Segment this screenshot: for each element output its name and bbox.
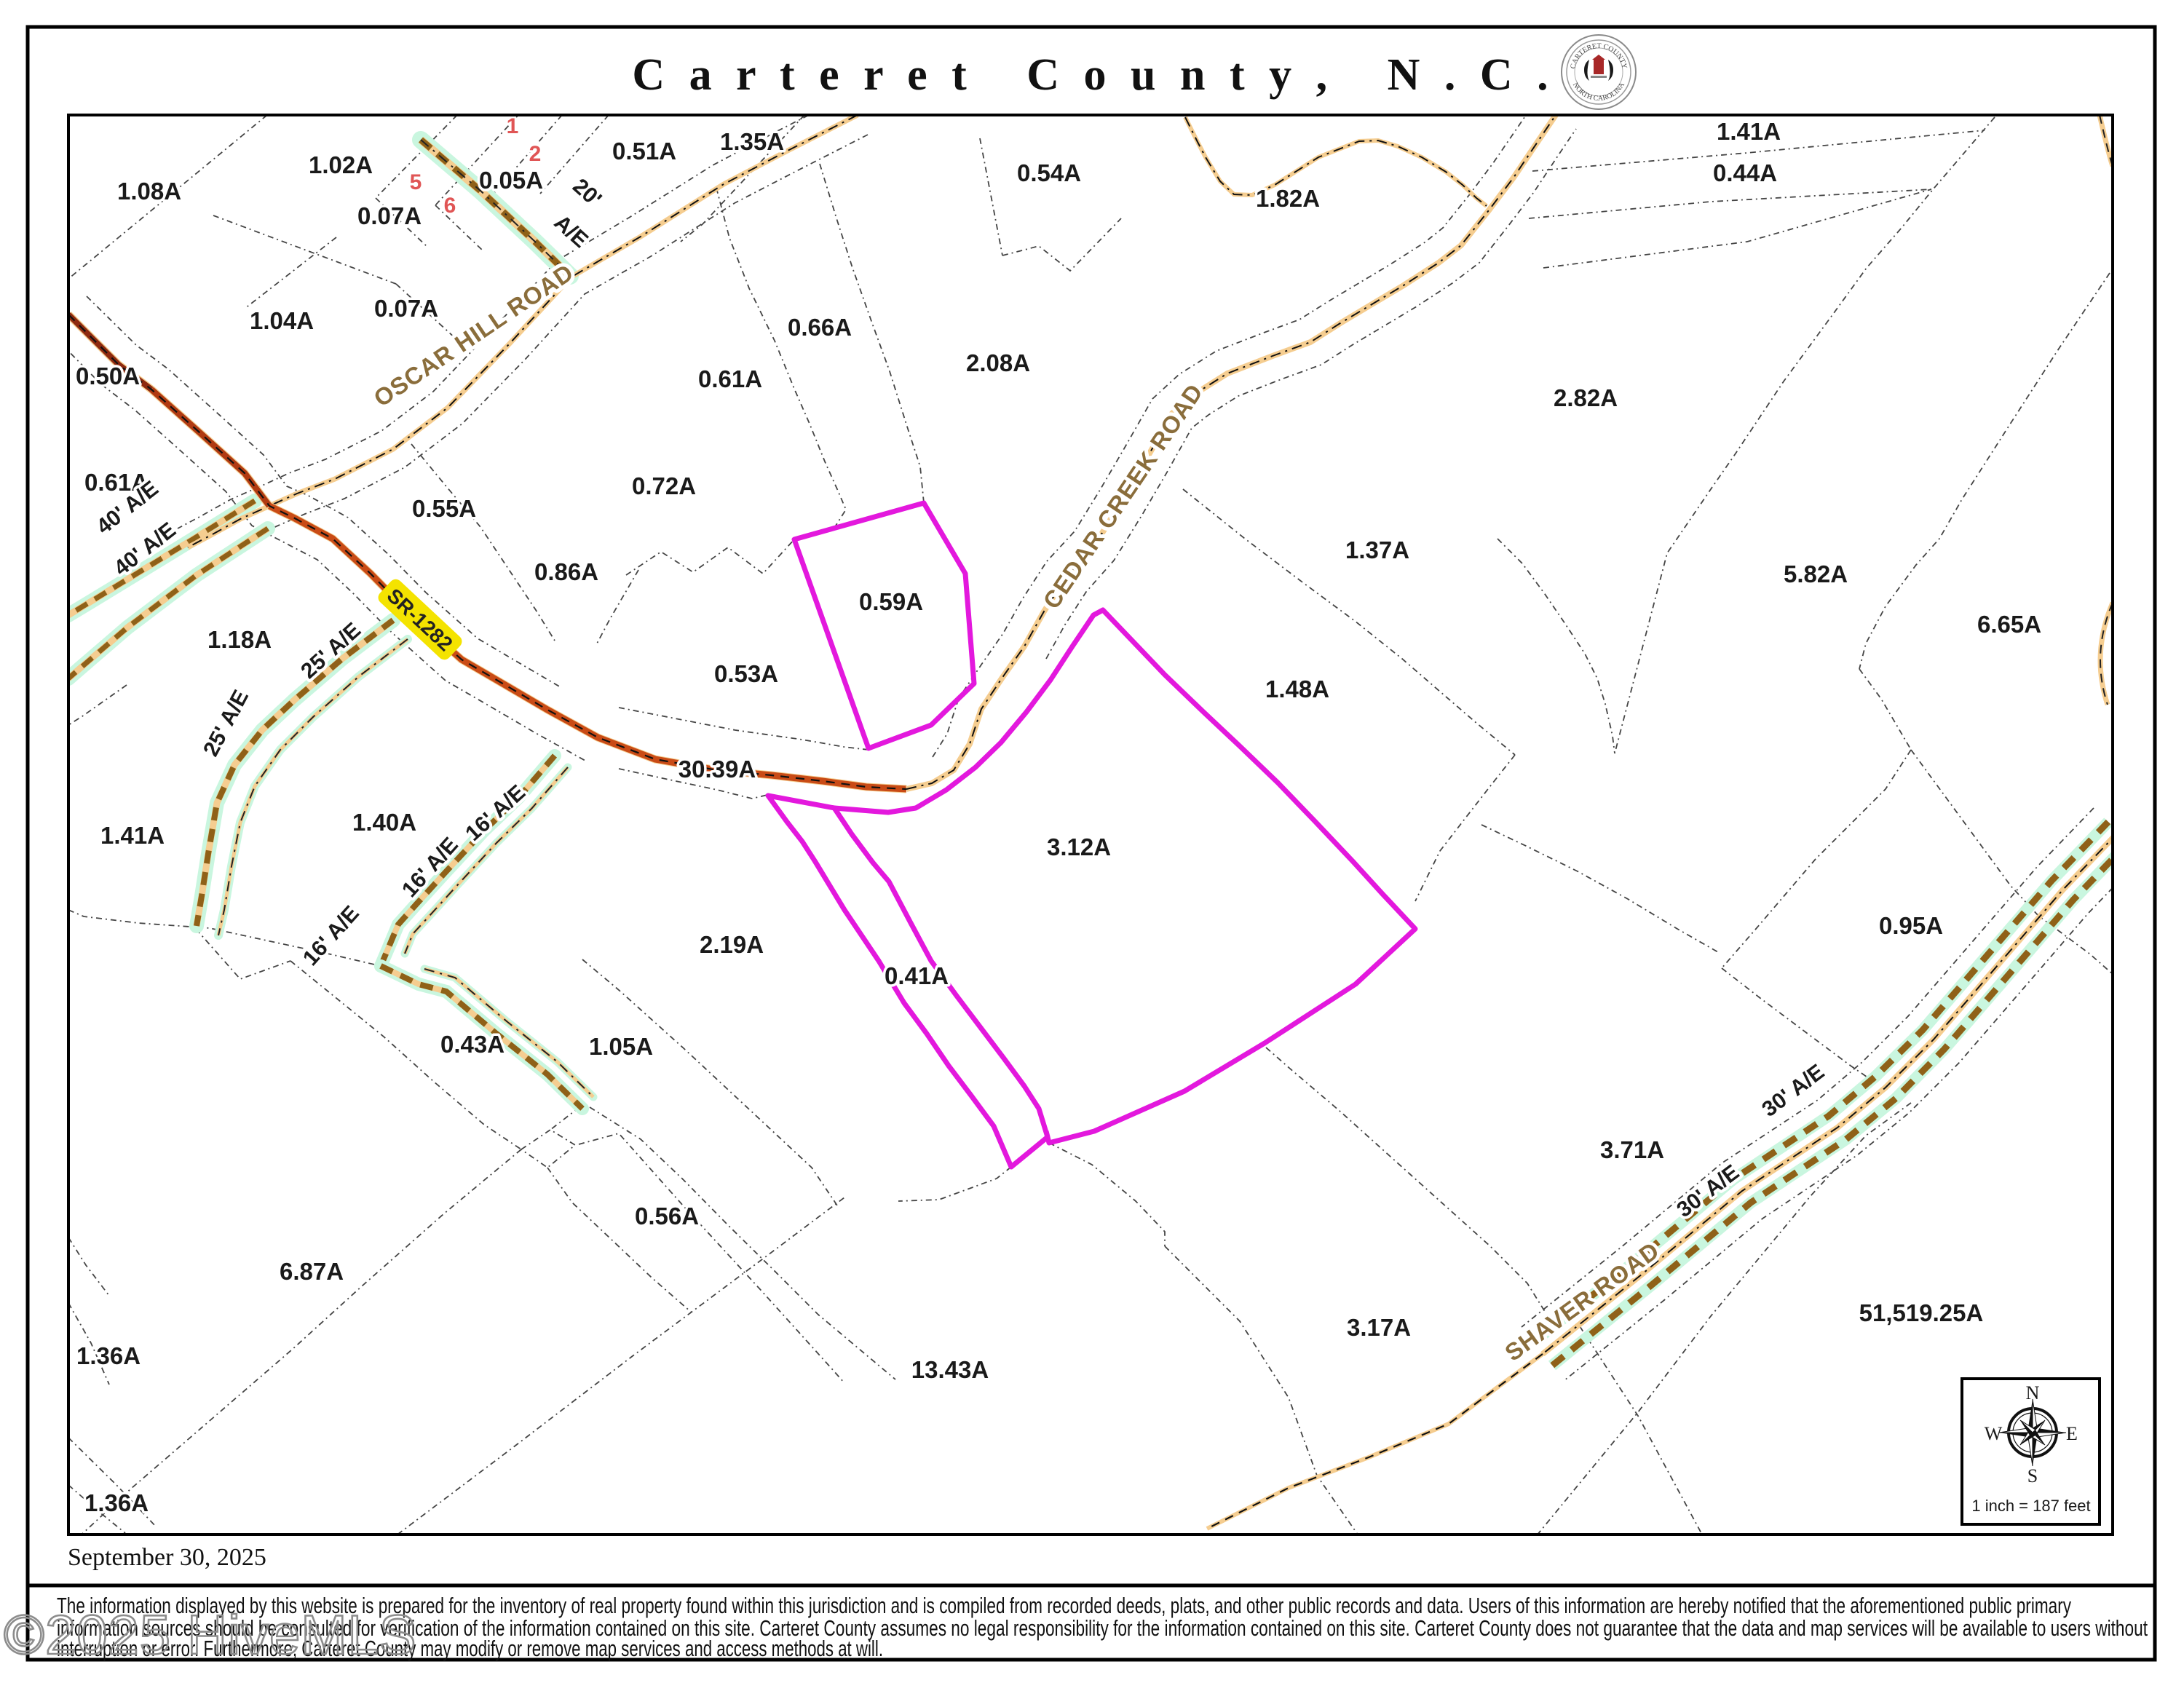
svg-text:1.40A: 1.40A: [352, 809, 416, 836]
svg-text:6: 6: [444, 194, 456, 218]
svg-text:5: 5: [410, 170, 422, 194]
svg-text:0.66A: 0.66A: [788, 314, 852, 341]
svg-text:3.71A: 3.71A: [1600, 1136, 1664, 1163]
svg-text:1.37A: 1.37A: [1345, 536, 1409, 563]
svg-text:E: E: [2066, 1423, 2078, 1444]
svg-text:1.08A: 1.08A: [117, 178, 181, 205]
svg-text:C a r t e r e t C o u n t y: C a r t e r e t C o u n t y , N . C .: [632, 50, 1554, 100]
svg-text:2.08A: 2.08A: [966, 349, 1030, 376]
svg-text:September 30, 2025: September 30, 2025: [68, 1544, 266, 1571]
svg-text:0.53A: 0.53A: [714, 660, 778, 687]
svg-text:N: N: [2026, 1382, 2040, 1403]
svg-text:0.54A: 0.54A: [1017, 159, 1081, 186]
svg-text:0.43A: 0.43A: [440, 1031, 505, 1058]
svg-text:0.44A: 0.44A: [1713, 159, 1777, 186]
svg-text:1.18A: 1.18A: [207, 626, 272, 653]
svg-text:13.43A: 13.43A: [911, 1356, 989, 1383]
svg-text:51,519.25A: 51,519.25A: [1859, 1299, 1984, 1326]
svg-text:1.48A: 1.48A: [1265, 676, 1329, 702]
svg-text:2.82A: 2.82A: [1554, 384, 1618, 411]
svg-text:6.87A: 6.87A: [280, 1258, 344, 1285]
svg-text:0.56A: 0.56A: [635, 1203, 699, 1229]
svg-text:0.05A: 0.05A: [479, 167, 543, 194]
svg-text:S: S: [2027, 1465, 2038, 1486]
svg-text:0.07A: 0.07A: [374, 295, 438, 322]
svg-text:3.17A: 3.17A: [1347, 1314, 1411, 1341]
svg-text:5.82A: 5.82A: [1784, 561, 1848, 587]
svg-text:0.86A: 0.86A: [534, 558, 598, 585]
svg-text:1.02A: 1.02A: [309, 151, 373, 178]
svg-text:1.04A: 1.04A: [250, 307, 314, 334]
svg-text:1.36A: 1.36A: [76, 1342, 141, 1369]
svg-text:0.07A: 0.07A: [357, 202, 422, 229]
svg-text:0.51A: 0.51A: [612, 138, 676, 165]
svg-text:2.19A: 2.19A: [700, 931, 764, 958]
svg-text:3.12A: 3.12A: [1047, 833, 1111, 860]
svg-text:0.95A: 0.95A: [1879, 912, 1943, 939]
svg-text:0.41A: 0.41A: [885, 962, 949, 989]
svg-text:2: 2: [529, 142, 542, 166]
svg-text:0.61A: 0.61A: [698, 365, 762, 392]
svg-text:1 inch = 187 feet: 1 inch = 187 feet: [1971, 1497, 2090, 1515]
svg-text:1.05A: 1.05A: [589, 1033, 653, 1060]
svg-text:0.72A: 0.72A: [632, 472, 696, 499]
svg-text:1.41A: 1.41A: [1717, 118, 1781, 145]
svg-text:30.39A: 30.39A: [678, 756, 756, 783]
svg-text:0.59A: 0.59A: [859, 588, 923, 615]
svg-text:6.65A: 6.65A: [1977, 611, 2041, 638]
svg-text:1: 1: [507, 114, 519, 138]
svg-text:1.41A: 1.41A: [100, 822, 165, 849]
svg-text:1.35A: 1.35A: [720, 128, 784, 155]
svg-text:1.36A: 1.36A: [84, 1489, 149, 1516]
svg-text:0.55A: 0.55A: [412, 495, 476, 522]
svg-text:1.82A: 1.82A: [1256, 185, 1320, 212]
svg-text:©2025 HiveMLS: ©2025 HiveMLS: [4, 1604, 417, 1666]
svg-text:W: W: [1985, 1423, 2003, 1444]
svg-text:0.50A: 0.50A: [76, 363, 140, 389]
